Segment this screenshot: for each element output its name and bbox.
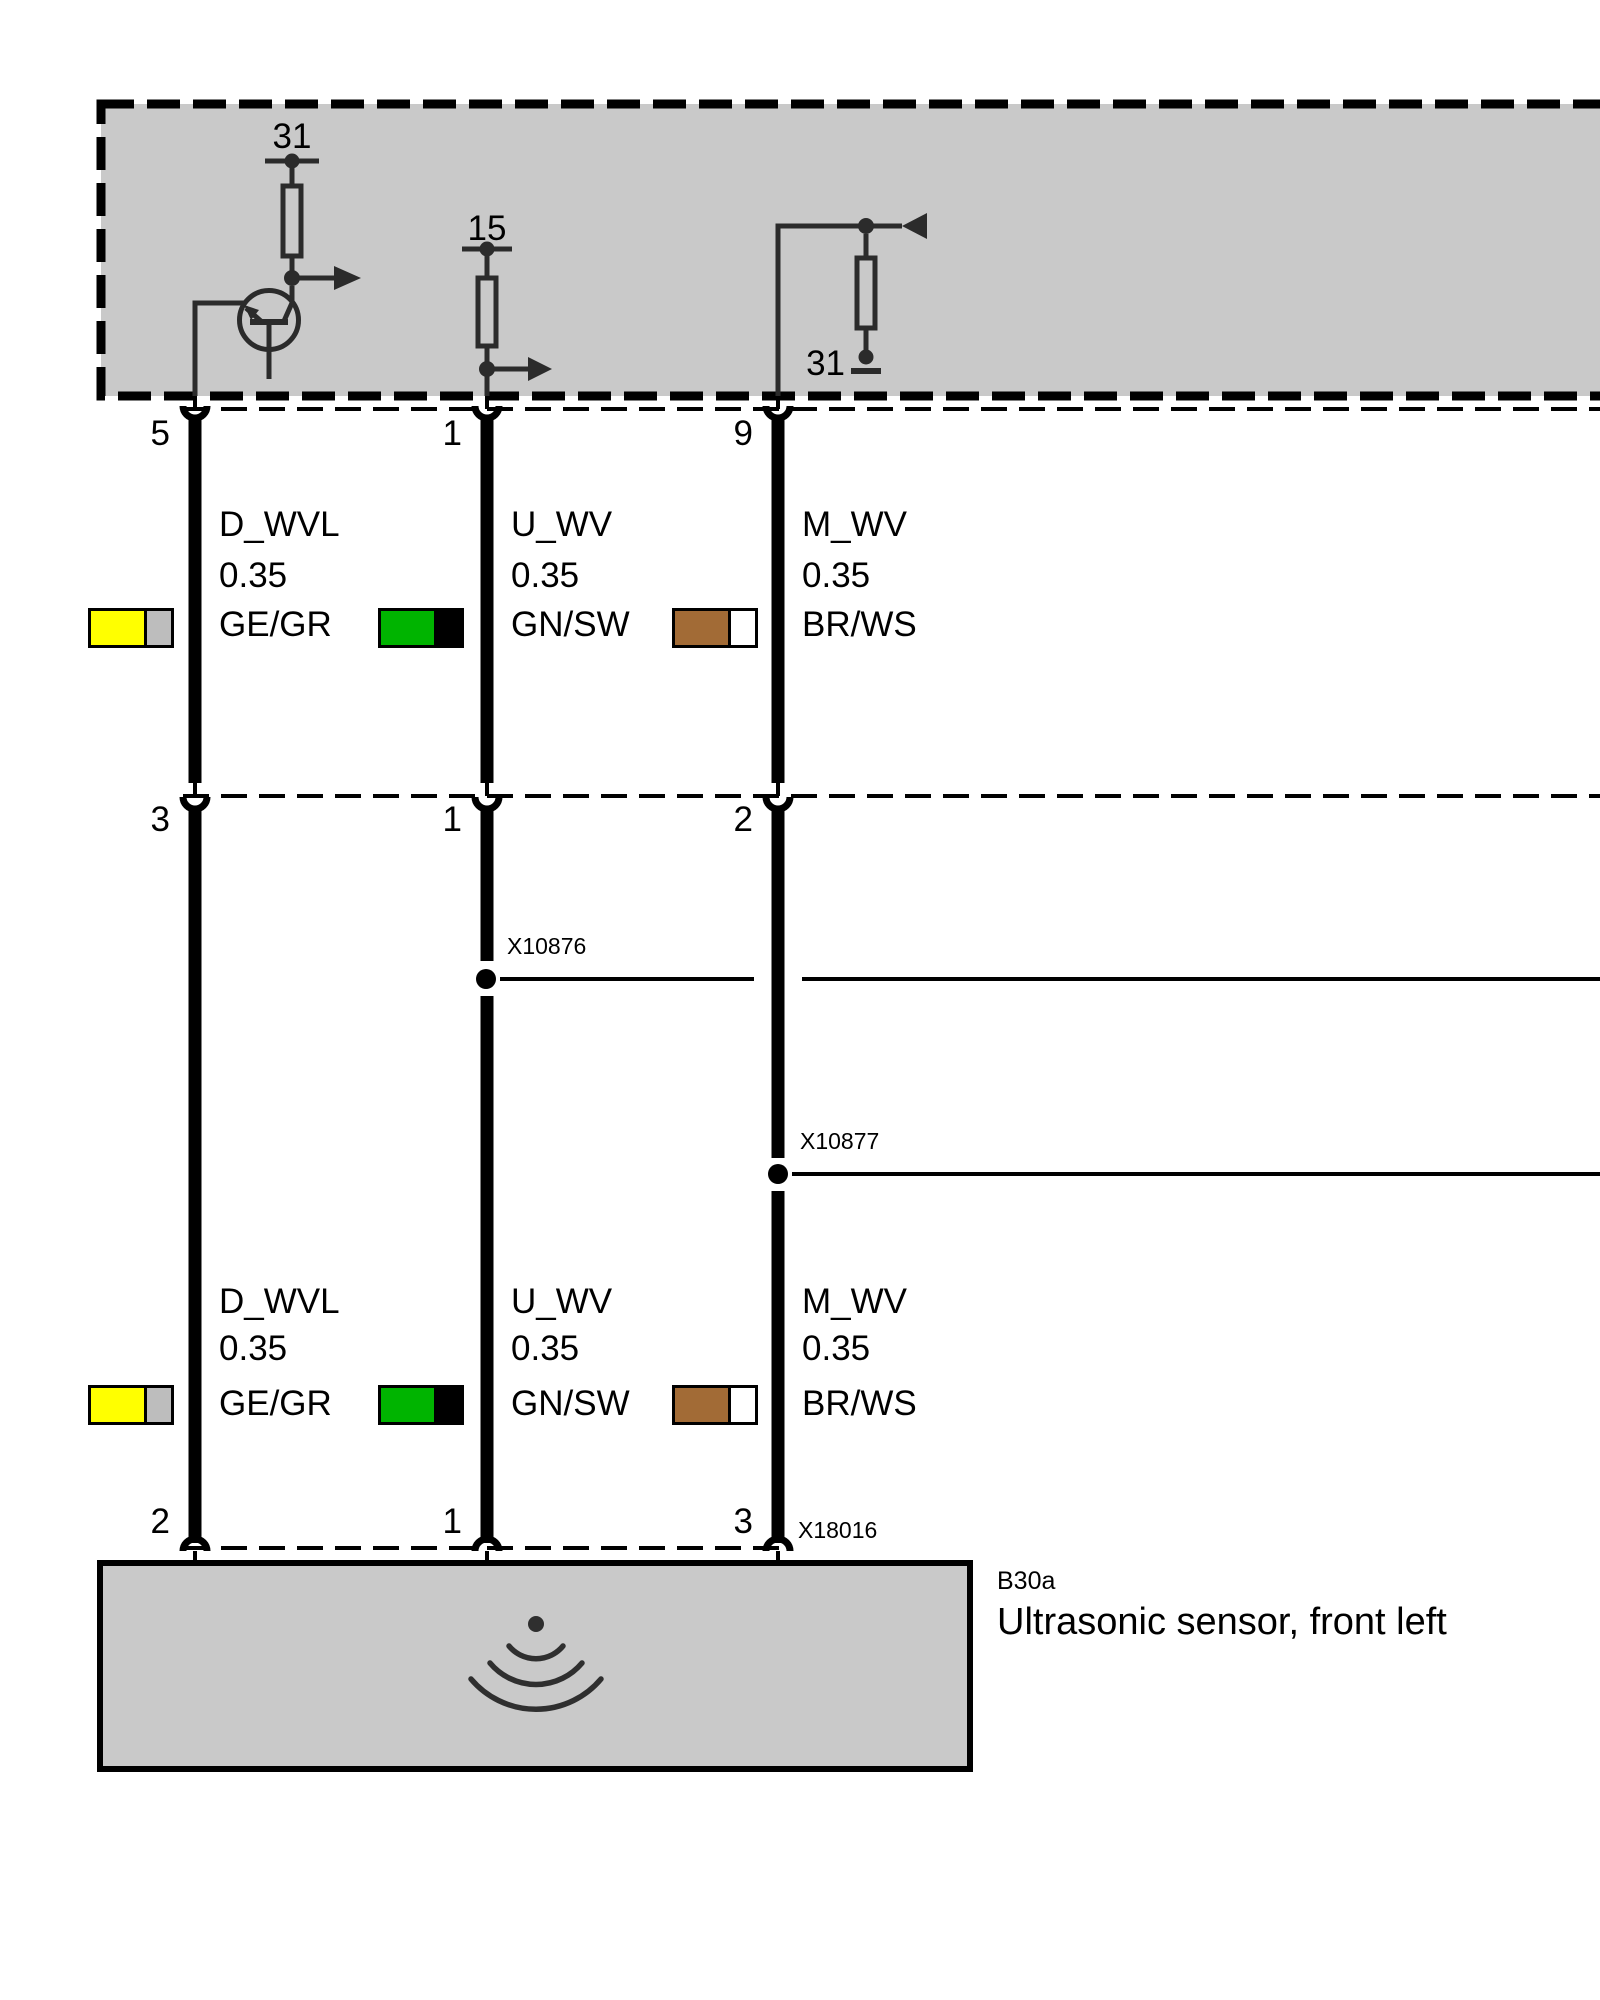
wire-size-label: 0.35	[219, 1331, 287, 1366]
sensor-pin-2: 2	[50, 1504, 170, 1539]
sensor-pin-3: 3	[633, 1504, 753, 1539]
swatch-stripe-color	[437, 1388, 461, 1422]
pin-socket-icon	[475, 797, 499, 809]
splice-x10877-label[interactable]: X10877	[800, 1130, 879, 1153]
sensor-box[interactable]	[100, 1563, 970, 1769]
resistor-icon	[283, 186, 301, 256]
splice-x10876[interactable]	[476, 969, 1600, 989]
wire-color-swatch-br-ws	[672, 1385, 758, 1425]
swatch-stripe-color	[437, 611, 461, 645]
wire-size-label: 0.35	[511, 1331, 579, 1366]
wiring-diagram-canvas: 31 15 31 5 1 9 3 1 2 2 1 3 D_WVL 0.35 GE…	[0, 0, 1600, 2000]
wire-colorcode-label: GN/SW	[511, 607, 630, 642]
wire-colorcode-label: GE/GR	[219, 1386, 332, 1421]
swatch-main-color	[91, 1388, 147, 1422]
wire-signal-label: U_WV	[511, 507, 612, 542]
swatch-stripe-color	[731, 611, 755, 645]
wire-color-swatch-gn-sw	[378, 608, 464, 648]
terminal-15-label: 15	[427, 211, 547, 246]
swatch-stripe-color	[147, 1388, 171, 1422]
connector-x18016-label[interactable]: X18016	[798, 1519, 877, 1542]
inline-pin-1: 1	[342, 802, 462, 837]
component-name-label[interactable]: Ultrasonic sensor, front left	[997, 1603, 1447, 1641]
splice-dot[interactable]	[768, 1164, 788, 1184]
pin-socket-icon	[183, 797, 207, 809]
wire-color-swatch-br-ws	[672, 608, 758, 648]
swatch-main-color	[675, 611, 731, 645]
junction-dot	[858, 218, 874, 234]
swatch-main-color	[381, 611, 437, 645]
terminal-31-top-label: 31	[232, 119, 352, 154]
wire-colorcode-label: GE/GR	[219, 607, 332, 642]
swatch-main-color	[91, 611, 147, 645]
wire-signal-label: M_WV	[802, 1284, 907, 1319]
sensor-pin-1: 1	[342, 1504, 462, 1539]
wire-colorcode-label: BR/WS	[802, 1386, 917, 1421]
inline-pin-2: 2	[633, 802, 753, 837]
wire-size-label: 0.35	[219, 558, 287, 593]
inline-pin-3: 3	[50, 802, 170, 837]
transducer-dot	[528, 1616, 544, 1632]
component-code-label[interactable]: B30a	[997, 1569, 1055, 1594]
diagram-artwork	[0, 0, 1600, 2000]
module-pin-1: 1	[342, 416, 462, 451]
terminal-31-right-label: 31	[725, 346, 845, 381]
wire-color-swatch-ge-gr	[88, 608, 174, 648]
swatch-main-color	[381, 1388, 437, 1422]
splice-x10877[interactable]	[768, 1164, 1600, 1184]
wire-size-label: 0.35	[511, 558, 579, 593]
swatch-stripe-color	[731, 1388, 755, 1422]
swatch-stripe-color	[147, 611, 171, 645]
wire-signal-label: U_WV	[511, 1284, 612, 1319]
wire-color-swatch-ge-gr	[88, 1385, 174, 1425]
splice-dot[interactable]	[476, 969, 496, 989]
wire-signal-label: D_WVL	[219, 507, 340, 542]
swatch-main-color	[675, 1388, 731, 1422]
wire-color-swatch-gn-sw	[378, 1385, 464, 1425]
wire-colorcode-label: GN/SW	[511, 1386, 630, 1421]
splice-x10876-label[interactable]: X10876	[507, 935, 586, 958]
wire-size-label: 0.35	[802, 558, 870, 593]
resistor-icon	[478, 278, 496, 346]
module-pin-5: 5	[50, 416, 170, 451]
pin-socket-icon	[766, 797, 790, 809]
wire-signal-label: M_WV	[802, 507, 907, 542]
module-pin-9: 9	[633, 416, 753, 451]
ground-dot	[859, 350, 874, 365]
wire-size-label: 0.35	[802, 1331, 870, 1366]
resistor-icon	[857, 258, 875, 328]
wire-signal-label: D_WVL	[219, 1284, 340, 1319]
wire-colorcode-label: BR/WS	[802, 607, 917, 642]
